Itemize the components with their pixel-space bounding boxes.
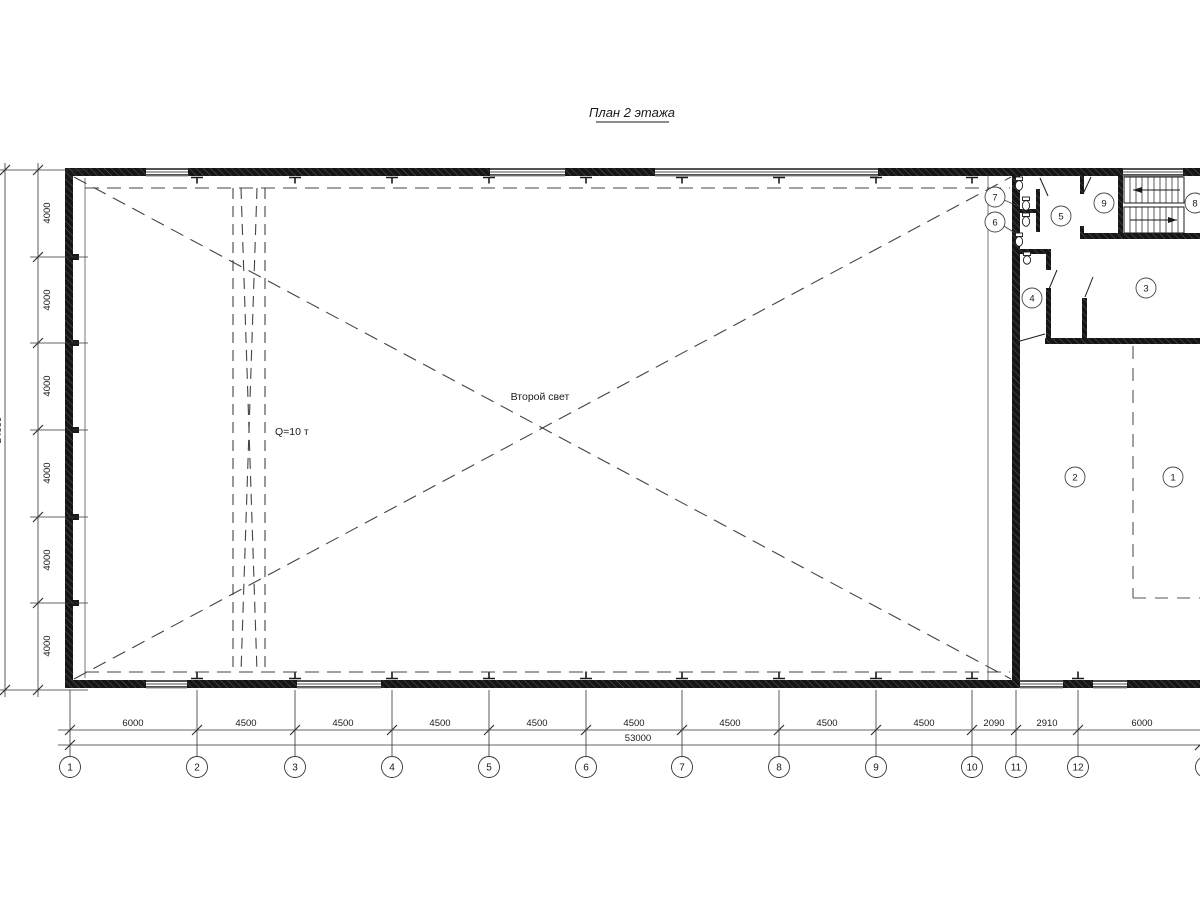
wall-below-stairs [1080, 233, 1200, 239]
room-bubble-5: 5 [1051, 206, 1071, 226]
arrow-left-icon [1133, 187, 1142, 193]
dim-label: 4500 [332, 718, 353, 729]
dim-label: 4000 [42, 289, 53, 310]
crane-capacity-label: Q=10 т [275, 426, 309, 438]
door-room9 [1083, 177, 1091, 194]
axis-number: 6 [583, 763, 589, 774]
floor-plan-drawing: План 2 этажа [0, 0, 1200, 900]
dim-label: 4000 [42, 462, 53, 483]
room-bubble-8: 8 [1185, 193, 1200, 213]
window [490, 168, 565, 176]
dim-label: 2910 [1036, 718, 1057, 729]
room-number: 7 [992, 193, 997, 204]
room-bubble-1: 1 [1163, 467, 1183, 487]
dim-label: 2090 [983, 718, 1004, 729]
dim-label: 4000 [42, 549, 53, 570]
axis-number: 5 [486, 763, 492, 774]
room-bubble-3: 3 [1136, 278, 1156, 298]
wall-mid [1045, 338, 1200, 344]
arrow-right-icon [1168, 217, 1177, 223]
dim-label: 4500 [526, 718, 547, 729]
dim-label: 4000 [42, 375, 53, 396]
dim-label: 4500 [235, 718, 256, 729]
wc-divider-wall [1036, 189, 1040, 232]
axis-number: 10 [966, 763, 978, 774]
axis-number: 2 [194, 763, 200, 774]
left-dimension-labels: 4000 4000 4000 4000 4000 4000 24000 [0, 202, 53, 656]
axis-bubble: 1 [60, 757, 81, 778]
dim-label: 4500 [913, 718, 934, 729]
axis-number: 3 [292, 763, 298, 774]
left-wall [65, 168, 73, 688]
room-number: 5 [1058, 212, 1063, 223]
axis-bubble: 9 [866, 757, 887, 778]
door-room3 [1085, 277, 1093, 297]
left-dimensions [0, 163, 88, 697]
room-bubble-4: 4 [1022, 288, 1042, 308]
stair-treads [1130, 177, 1178, 233]
room3-entry-wall [1082, 298, 1087, 341]
axis-bubble: 6 [576, 757, 597, 778]
window [1123, 168, 1183, 176]
room-bubble-2: 2 [1065, 467, 1085, 487]
room9-wall-lower [1080, 226, 1084, 237]
axis-number: 12 [1072, 763, 1084, 774]
wall-mid-left-stub [1012, 338, 1020, 344]
axis-bubble: 13 [1196, 757, 1200, 778]
axis-number: 11 [1011, 763, 1022, 774]
axis-number: 8 [776, 763, 782, 774]
door-corridor5 [1040, 178, 1048, 196]
room-number: 3 [1143, 284, 1148, 295]
room4-wall-upper [1046, 250, 1051, 270]
dim-label: 4500 [429, 718, 450, 729]
room-bubble-6: 6 [985, 212, 1015, 233]
room-number: 2 [1072, 473, 1077, 484]
window [655, 168, 878, 176]
room-number: 1 [1170, 473, 1175, 484]
axis-number: 4 [389, 763, 395, 774]
top-wall [65, 168, 1200, 176]
second-light-label: Второй свет [511, 391, 570, 403]
axis-bubble: 11 [1006, 757, 1027, 778]
axis-bubbles: 1 2 3 4 5 6 7 8 9 10 11 12 13 [60, 757, 1200, 778]
axis-number: 1 [67, 763, 73, 774]
crane-runway [233, 188, 265, 672]
dim-label: 4500 [719, 718, 740, 729]
axis-bubble: 8 [769, 757, 790, 778]
dim-label: 4000 [42, 635, 53, 656]
room-number: 8 [1192, 199, 1197, 210]
stairwell-wall [1118, 176, 1123, 235]
page-title: План 2 этажа [589, 105, 675, 120]
drawing-title: План 2 этажа [589, 105, 675, 122]
axis-bubble: 10 [962, 757, 983, 778]
dim-label: 6000 [122, 718, 143, 729]
room4-wall-lower [1046, 288, 1051, 341]
window [146, 168, 188, 176]
dim-total-label: 24000 [0, 417, 4, 443]
wc-bottom-wall [1016, 249, 1051, 254]
column-marks [73, 178, 1084, 679]
stair-direction-arrows [1130, 187, 1180, 223]
window [1093, 680, 1127, 688]
exterior-walls [65, 168, 1200, 688]
axis-bubble: 4 [382, 757, 403, 778]
dim-total-label: 53000 [625, 733, 651, 744]
room-number: 4 [1029, 294, 1034, 305]
sink-icon [1022, 197, 1029, 210]
axis-bubble: 5 [479, 757, 500, 778]
sink-icon [1022, 213, 1029, 226]
window [1020, 680, 1063, 688]
toilet-icon [1023, 252, 1030, 264]
toilet-icon [1015, 177, 1022, 190]
axis-bubble: 2 [187, 757, 208, 778]
floor-opening-outline [74, 176, 1011, 680]
axis-bubble: 12 [1068, 757, 1089, 778]
door-room4 [1049, 270, 1057, 289]
dim-label: 4000 [42, 202, 53, 223]
room-number: 9 [1101, 199, 1106, 210]
axis-bubble: 7 [672, 757, 693, 778]
staircase [1124, 177, 1184, 233]
dim-label: 4500 [623, 718, 644, 729]
axis-number: 9 [873, 763, 879, 774]
left-extension-lines [0, 170, 88, 690]
room-bubble-9: 9 [1094, 193, 1114, 213]
dim-label: 6000 [1131, 718, 1152, 729]
axis-number: 7 [679, 763, 685, 774]
dim-label: 4500 [816, 718, 837, 729]
left-wall-pilasters [73, 254, 1017, 606]
room9-wall-upper [1080, 176, 1084, 194]
room-number: 6 [992, 218, 997, 229]
window [297, 680, 381, 688]
toilet-icon [1015, 233, 1022, 246]
window [146, 680, 187, 688]
bottom-dimension-labels: 6000 4500 4500 4500 4500 4500 4500 4500 … [122, 718, 1152, 744]
door-mid-wall [1020, 334, 1045, 341]
axis-bubble: 3 [285, 757, 306, 778]
